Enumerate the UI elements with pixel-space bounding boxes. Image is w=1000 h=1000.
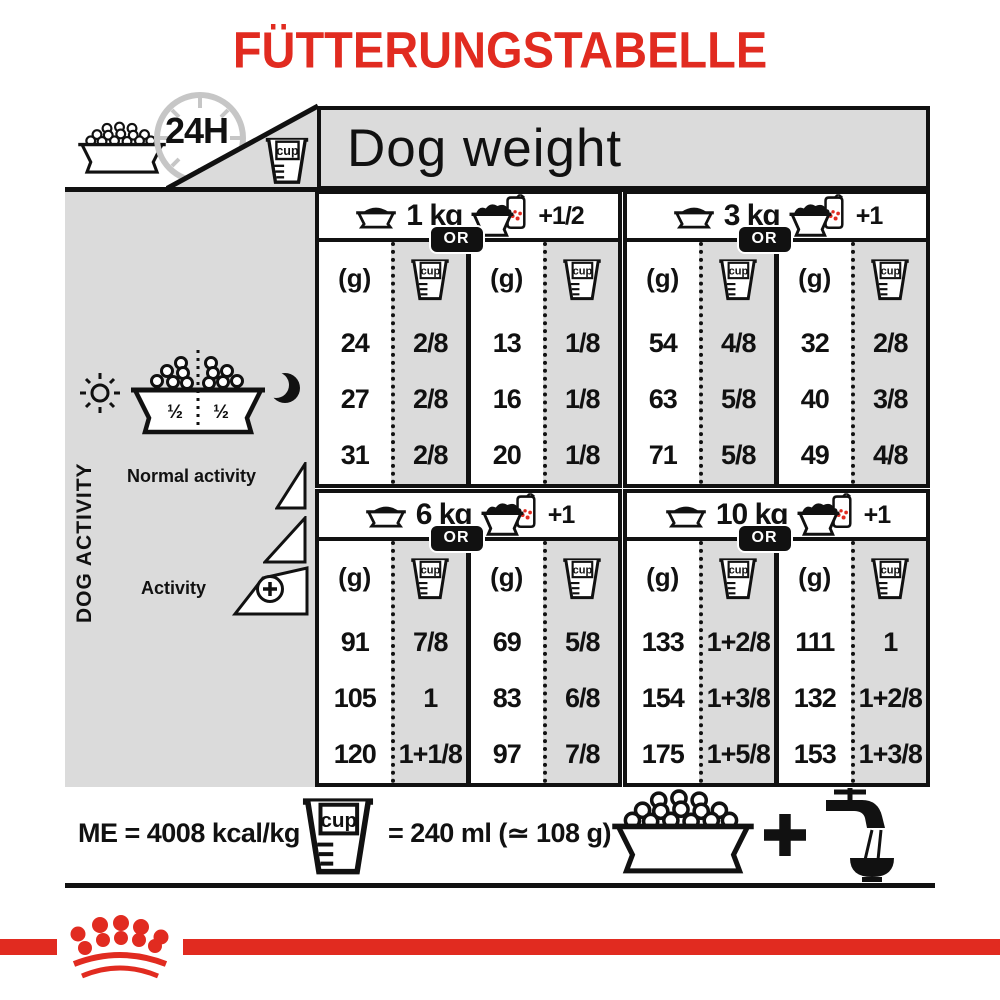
cup-header [855,242,927,315]
activity-ramp-medium-icon [263,516,307,564]
cup-column: 1 1+2/8 1+3/8 [851,541,927,783]
metabolizable-energy-label: ME = 4008 kcal/kg [78,818,300,849]
cup-column: 7/8 1 1+1/8 [391,541,467,783]
half-half-bowl-icon: ½ ½ [123,350,273,440]
grams-value: 20 [471,428,543,484]
dog-weight-label: Dog weight [347,118,622,179]
grams-column: (g) 111 132 153 [779,541,851,783]
cup-value: 1+2/8 [855,670,927,726]
cup-column: 1+2/8 1+3/8 1+5/8 [699,541,775,783]
cup-value: 6/8 [547,670,619,726]
grams-value: 40 [779,371,851,427]
grams-value: 71 [627,428,699,484]
cup-value: 4/8 [703,315,775,371]
grams-value: 83 [471,670,543,726]
cup-equivalence-label: = 240 ml (≃ 108 g) [388,818,611,849]
cup-icon [870,256,910,302]
plus-circle-icon [253,572,287,606]
cup-value: 5/8 [703,428,775,484]
grams-column: (g) 13 16 20 [471,242,543,484]
cup-value: 7/8 [395,614,467,670]
grams-value: 54 [627,315,699,371]
feeding-table: 1 kg +1/2 OR (g) 24 27 31 2/8 2/8 [315,190,930,787]
dog-activity-axis-label: DOG ACTIVITY [73,458,105,628]
normal-activity-label: Normal activity [127,466,256,487]
cup-header [547,541,619,614]
cup-icon [264,134,310,186]
grams-column: (g) 54 63 71 [627,242,699,484]
grams-header: (g) [627,242,699,315]
weight-header: 1 kg +1/2 OR [315,190,622,242]
dry-feeding-pair: (g) 24 27 31 2/8 2/8 2/8 [315,242,468,488]
or-badge: OR [737,225,793,254]
grams-value: 32 [779,315,851,371]
cup-icon [870,555,910,601]
grams-column: (g) 24 27 31 [319,242,391,484]
dog-weight-banner: Dog weight [317,106,930,190]
empty-bowl-icon [363,502,409,528]
grams-column: (g) 32 40 49 [779,242,851,484]
cup-header [855,541,927,614]
mixed-extra-label: +1 [864,501,891,530]
moon-icon [265,368,301,408]
weight-block-body: (g) 54 63 71 4/8 5/8 5/8 (g) 32 [623,242,930,488]
grams-value: 69 [471,614,543,670]
grams-header: (g) [779,541,851,614]
cup-value: 3/8 [855,371,927,427]
cup-header [547,242,619,315]
cup-value: 2/8 [395,428,467,484]
bowl-pouch-icon [795,493,857,537]
empty-bowl-icon [671,203,717,229]
bowl-pouch-icon [479,493,541,537]
cup-value: 4/8 [855,428,927,484]
brand-band-right [183,939,1000,955]
or-badge: OR [429,524,485,553]
cup-value: 5/8 [547,614,619,670]
cup-column: 2/8 3/8 4/8 [851,242,927,484]
weight-block-10kg: 10 kg +1 OR (g) 133 154 175 1+2/8 1+3/8 [623,489,930,787]
cup-value: 2/8 [395,371,467,427]
dry-feeding-pair: (g) 54 63 71 4/8 5/8 5/8 [623,242,776,488]
cup-column: 2/8 2/8 2/8 [391,242,467,484]
or-badge: OR [429,225,485,254]
cup-value: 1/8 [547,315,619,371]
weight-block-body: (g) 24 27 31 2/8 2/8 2/8 (g) 13 [315,242,622,488]
cup-icon [562,256,602,302]
grams-header: (g) [319,242,391,315]
water-faucet-icon [806,786,898,886]
dry-feeding-pair: (g) 91 105 120 7/8 1 1+1/8 [315,541,468,787]
grams-value: 91 [319,614,391,670]
mixed-extra-label: +1 [856,202,883,231]
mixed-feeding-pair: (g) 111 132 153 1 1+2/8 1+3/8 [776,541,930,787]
weight-header: 3 kg +1 OR [623,190,930,242]
cup-value: 1+3/8 [703,670,775,726]
weight-block-3kg: 3 kg +1 OR (g) 54 63 71 4/8 5/8 [623,190,930,488]
bowl-half-left-label: ½ [167,402,183,423]
grams-value: 153 [779,727,851,783]
grams-value: 154 [627,670,699,726]
grams-header: (g) [779,242,851,315]
grams-value: 105 [319,670,391,726]
cup-icon [562,555,602,601]
cup-value: 1+2/8 [703,614,775,670]
grams-column: (g) 133 154 175 [627,541,699,783]
grams-header: (g) [471,541,543,614]
grams-value: 175 [627,727,699,783]
grams-column: (g) 91 105 120 [319,541,391,783]
grams-value: 111 [779,614,851,670]
dog-activity-sidebar: ½ ½ DOG ACTIVITY Normal activity Activit… [65,190,315,787]
weight-header: 6 kg +1 OR [315,489,622,541]
cup-column: 1/8 1/8 1/8 [543,242,619,484]
dry-feeding-pair: (g) 133 154 175 1+2/8 1+3/8 1+5/8 [623,541,776,787]
cup-value: 1 [855,614,927,670]
cup-column: 5/8 6/8 7/8 [543,541,619,783]
empty-bowl-icon [663,502,709,528]
grams-value: 63 [627,371,699,427]
cup-value: 1/8 [547,428,619,484]
grams-value: 133 [627,614,699,670]
grams-value: 97 [471,727,543,783]
cup-icon [718,555,758,601]
mixed-extra-label: +1 [548,501,575,530]
grams-header: (g) [471,242,543,315]
grams-value: 132 [779,670,851,726]
weight-block-6kg: 6 kg +1 OR (g) 91 105 120 7/8 1 [315,489,622,787]
empty-bowl-icon [353,203,399,229]
grams-value: 27 [319,371,391,427]
grams-value: 24 [319,315,391,371]
mixed-feeding-pair: (g) 32 40 49 2/8 3/8 4/8 [776,242,930,488]
cup-value: 2/8 [395,315,467,371]
feeding-chart-page: { "title": "FÜTTERUNGSTABELLE", "header"… [0,0,1000,1000]
cup-value: 5/8 [703,371,775,427]
weight-block-1kg: 1 kg +1/2 OR (g) 24 27 31 2/8 2/8 [315,190,622,488]
cup-value: 1+1/8 [395,727,467,783]
cup-icon [718,256,758,302]
grams-value: 13 [471,315,543,371]
activity-plus-label: Activity [141,578,206,599]
cup-value: 1 [395,670,467,726]
mixed-extra-label: +1/2 [538,202,583,231]
or-badge: OR [737,524,793,553]
cup-value: 1+5/8 [703,727,775,783]
weight-block-body: (g) 91 105 120 7/8 1 1+1/8 (g) 69 [315,541,622,787]
grams-value: 16 [471,371,543,427]
cup-value: 2/8 [855,315,927,371]
cup-value: 1/8 [547,371,619,427]
footer-divider [65,883,935,888]
weight-header: 10 kg +1 OR [623,489,930,541]
cup-value: 7/8 [547,727,619,783]
grams-value: 49 [779,428,851,484]
grams-column: (g) 69 83 97 [471,541,543,783]
bowl-half-right-label: ½ [213,402,229,423]
mixed-feeding-pair: (g) 13 16 20 1/8 1/8 1/8 [468,242,622,488]
brand-band-left [0,939,57,955]
cup-icon [410,256,450,302]
bowl-pouch-icon [787,194,849,238]
grams-value: 31 [319,428,391,484]
cup-icon [410,555,450,601]
header-divider [65,187,930,192]
plus-icon [764,814,806,856]
cup-column: 4/8 5/8 5/8 [699,242,775,484]
grams-value: 120 [319,727,391,783]
royal-canin-crown-logo [58,902,170,988]
grams-header: (g) [627,541,699,614]
kibble-bowl-icon [602,784,764,880]
weight-block-body: (g) 133 154 175 1+2/8 1+3/8 1+5/8 (g) [623,541,930,787]
grams-header: (g) [319,541,391,614]
activity-ramp-small-icon [275,462,307,510]
clock-24h-label: 24H [165,110,228,152]
sun-icon [76,369,124,417]
mixed-feeding-pair: (g) 69 83 97 5/8 6/8 7/8 [468,541,622,787]
cup-value: 1+3/8 [855,727,927,783]
page-title: FÜTTERUNGSTABELLE [0,20,1000,79]
cup-icon [300,792,376,878]
